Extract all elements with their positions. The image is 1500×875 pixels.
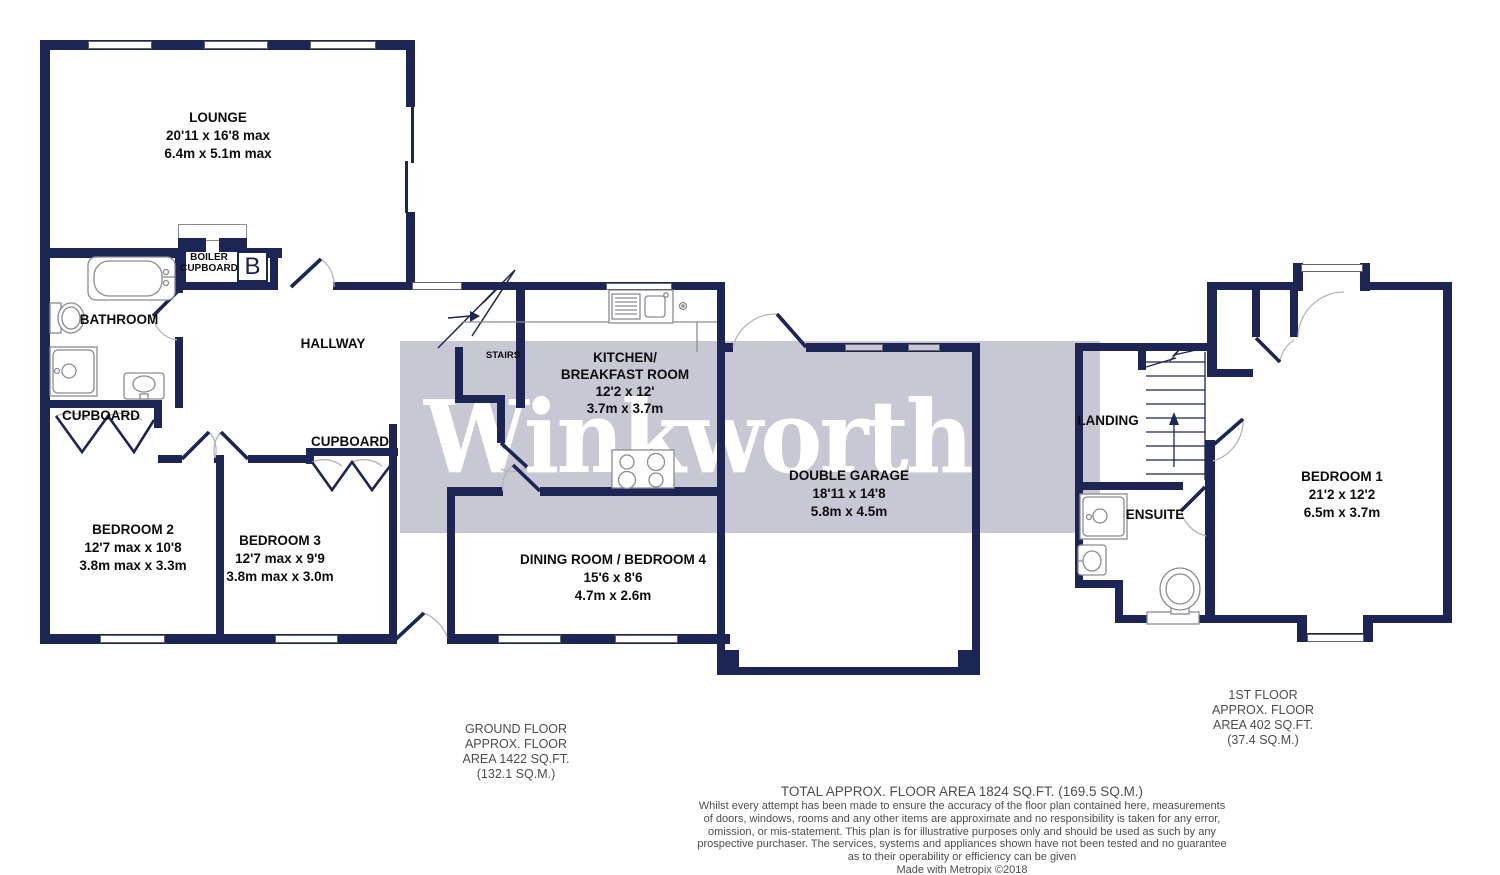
ground-floor-area-note: GROUND FLOOR APPROX. FLOOR AREA 1422 SQ.…: [463, 722, 570, 782]
window: [204, 41, 268, 49]
bathtub-icon: [88, 257, 175, 300]
room-label-boiler-cupboard: BOILERCUPBOARD: [180, 252, 238, 274]
room-label-stairs: STAIRS: [486, 351, 520, 361]
room-label-bedroom1: BEDROOM 121'2 x 12'26.5m x 3.7m: [1301, 468, 1383, 522]
window: [1301, 264, 1363, 272]
room-label-lounge: LOUNGE20'11 x 16'8 max6.4m x 5.1m max: [164, 109, 271, 163]
window: [908, 344, 940, 351]
kitchen-sink-icon: [609, 290, 687, 323]
window: [1307, 634, 1364, 642]
kitchen-counter-line: [462, 322, 717, 352]
window: [88, 41, 152, 49]
window: [498, 635, 561, 643]
room-label-bathroom: BATHROOM: [80, 311, 159, 329]
ensuite-toilet-icon: [1147, 568, 1200, 624]
window: [275, 635, 338, 643]
window: [606, 283, 672, 290]
room-label-ensuite: ENSUITE: [1126, 506, 1185, 524]
ensuite-sink-icon: [1078, 545, 1106, 575]
hob-icon: [612, 450, 674, 489]
room-label-cupboard-bedroom3: CUPBOARD: [311, 433, 389, 451]
ensuite-shower-icon: [1080, 494, 1127, 539]
total-area-note: TOTAL APPROX. FLOOR AREA 1824 SQ.FT. (16…: [781, 784, 1143, 799]
room-label-kitchen: KITCHEN/BREAKFAST ROOM 12'2 x 12'3.7m x …: [561, 349, 689, 417]
sink-icon: [124, 373, 164, 399]
window: [412, 282, 462, 290]
room-label-garage: DOUBLE GARAGE18'11 x 14'85.8m x 4.5m: [789, 467, 909, 521]
room-label-bedroom2: BEDROOM 212'7 max x 10'83.8m max x 3.3m: [79, 521, 186, 575]
room-label-bedroom3: BEDROOM 312'7 max x 9'93.8m max x 3.0m: [226, 532, 333, 586]
floor-plan: Winkworth: [0, 0, 1500, 875]
window: [615, 635, 678, 643]
first-floor-area-note: 1ST FLOOR APPROX. FLOOR AREA 402 SQ.FT. …: [1212, 688, 1314, 748]
boiler-symbol: B: [237, 251, 268, 282]
metropix-credit: Made with Metropix ©2018: [697, 864, 1226, 875]
room-label-cupboard-left: CUPBOARD: [62, 407, 140, 425]
window: [100, 635, 165, 643]
window: [845, 344, 883, 351]
room-label-dining: DINING ROOM / BEDROOM 415'6 x 8'64.7m x …: [520, 551, 706, 605]
disclaimer: Whilst every attempt has been made to en…: [697, 800, 1226, 875]
room-label-landing: LANDING: [1077, 412, 1139, 430]
shower-icon: [50, 347, 97, 396]
window: [310, 41, 376, 49]
room-label-hallway: HALLWAY: [301, 335, 366, 353]
